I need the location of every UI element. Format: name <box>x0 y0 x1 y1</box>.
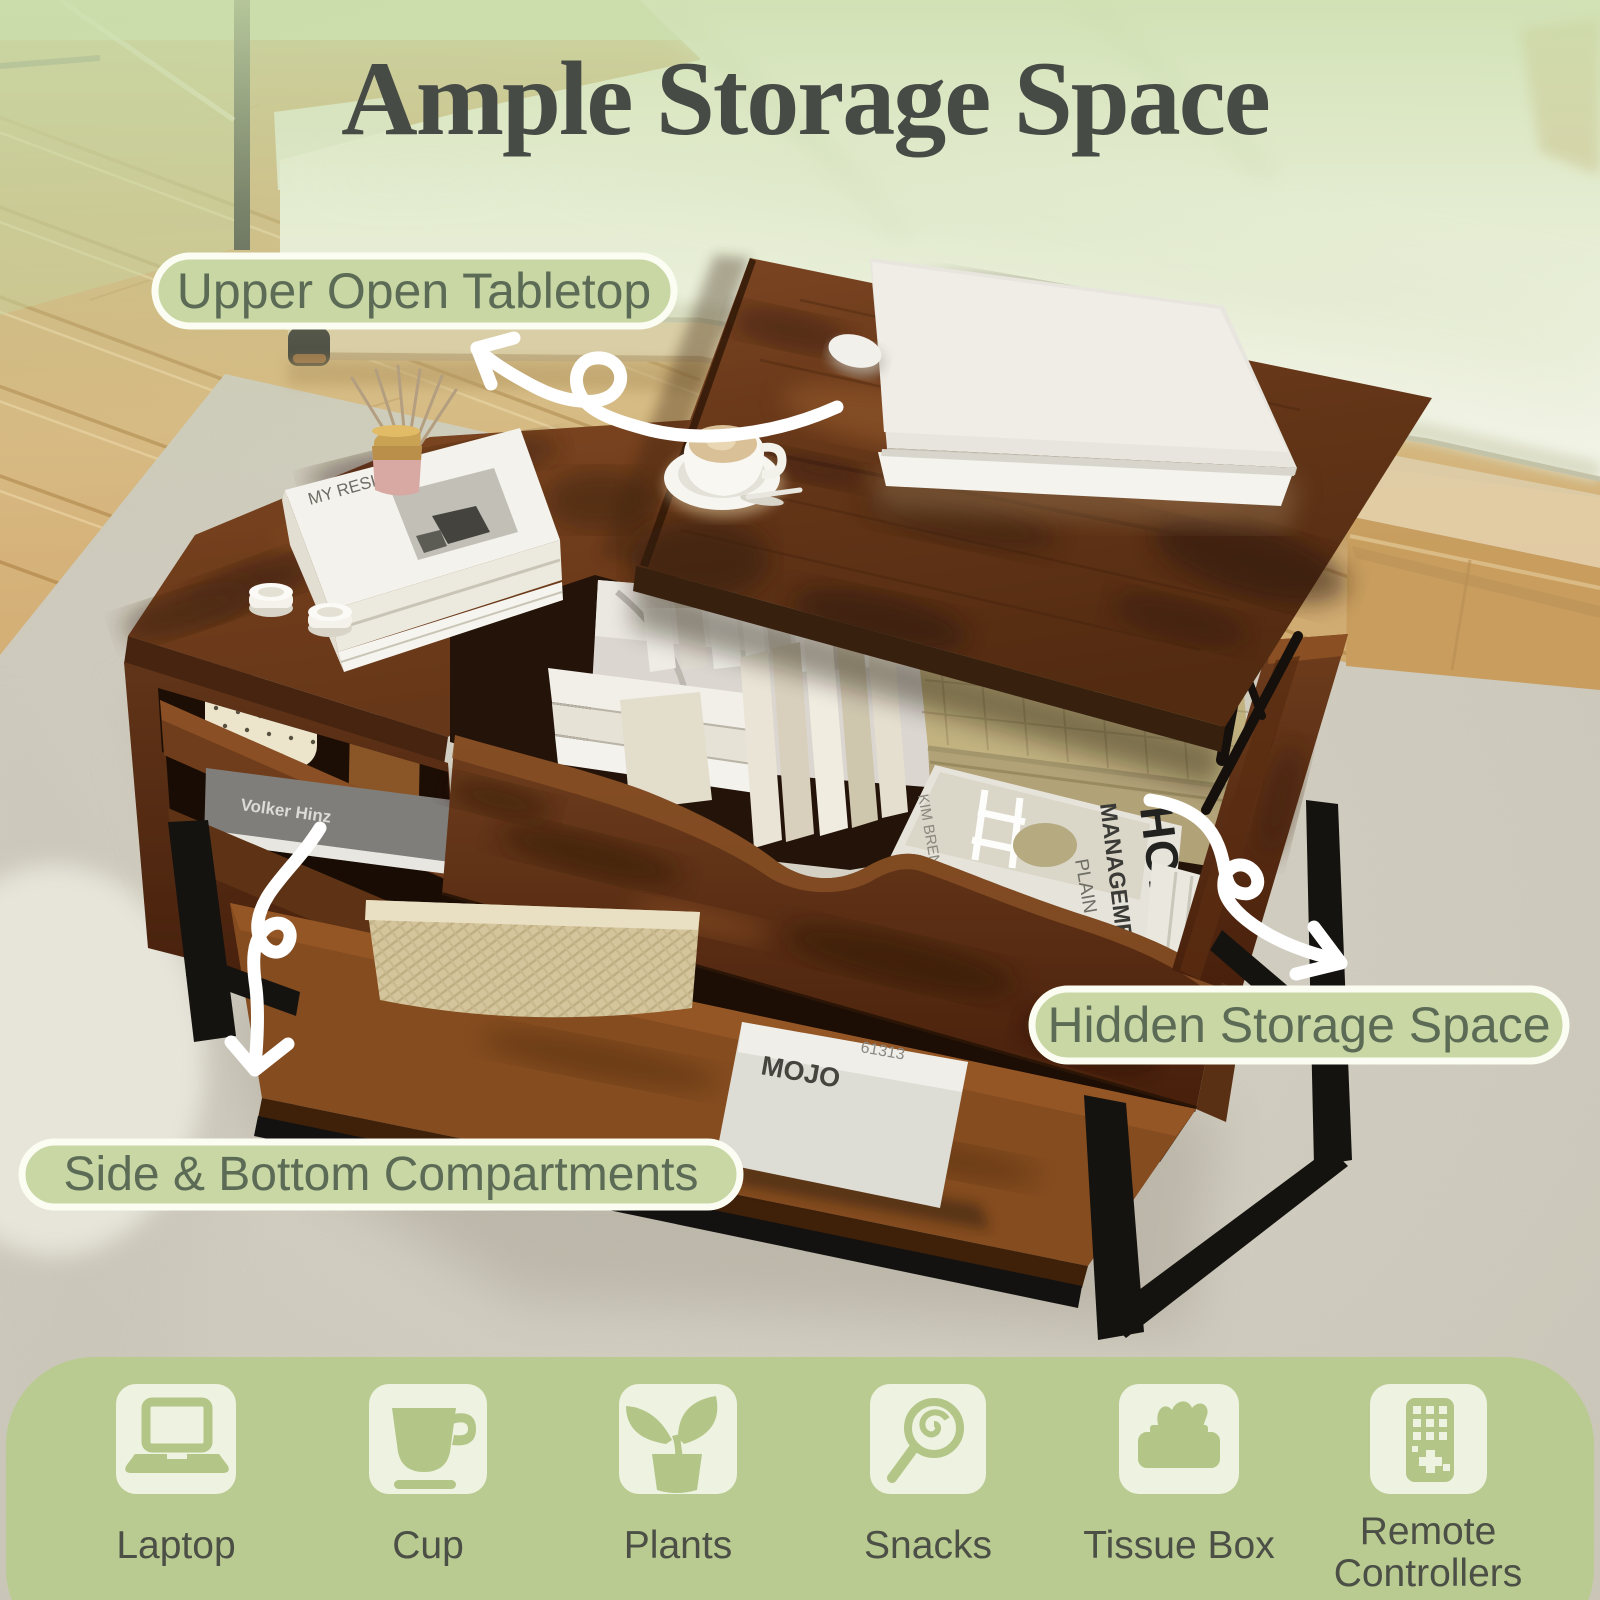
svg-text:Side & Bottom Compartments: Side & Bottom Compartments <box>64 1148 699 1201</box>
svg-text:Snacks: Snacks <box>864 1524 992 1567</box>
svg-text:Tissue Box: Tissue Box <box>1083 1524 1275 1567</box>
svg-text:Ample Storage Space: Ample Storage Space <box>341 40 1269 157</box>
svg-text:Plants: Plants <box>624 1524 732 1567</box>
svg-text:Remote: Remote <box>1360 1510 1497 1553</box>
svg-text:Hidden Storage Space: Hidden Storage Space <box>1047 997 1550 1053</box>
svg-text:Upper Open Tabletop: Upper Open Tabletop <box>177 263 651 319</box>
svg-text:Controllers: Controllers <box>1334 1552 1523 1595</box>
svg-text:Cup: Cup <box>392 1524 464 1567</box>
svg-text:Laptop: Laptop <box>116 1524 235 1567</box>
